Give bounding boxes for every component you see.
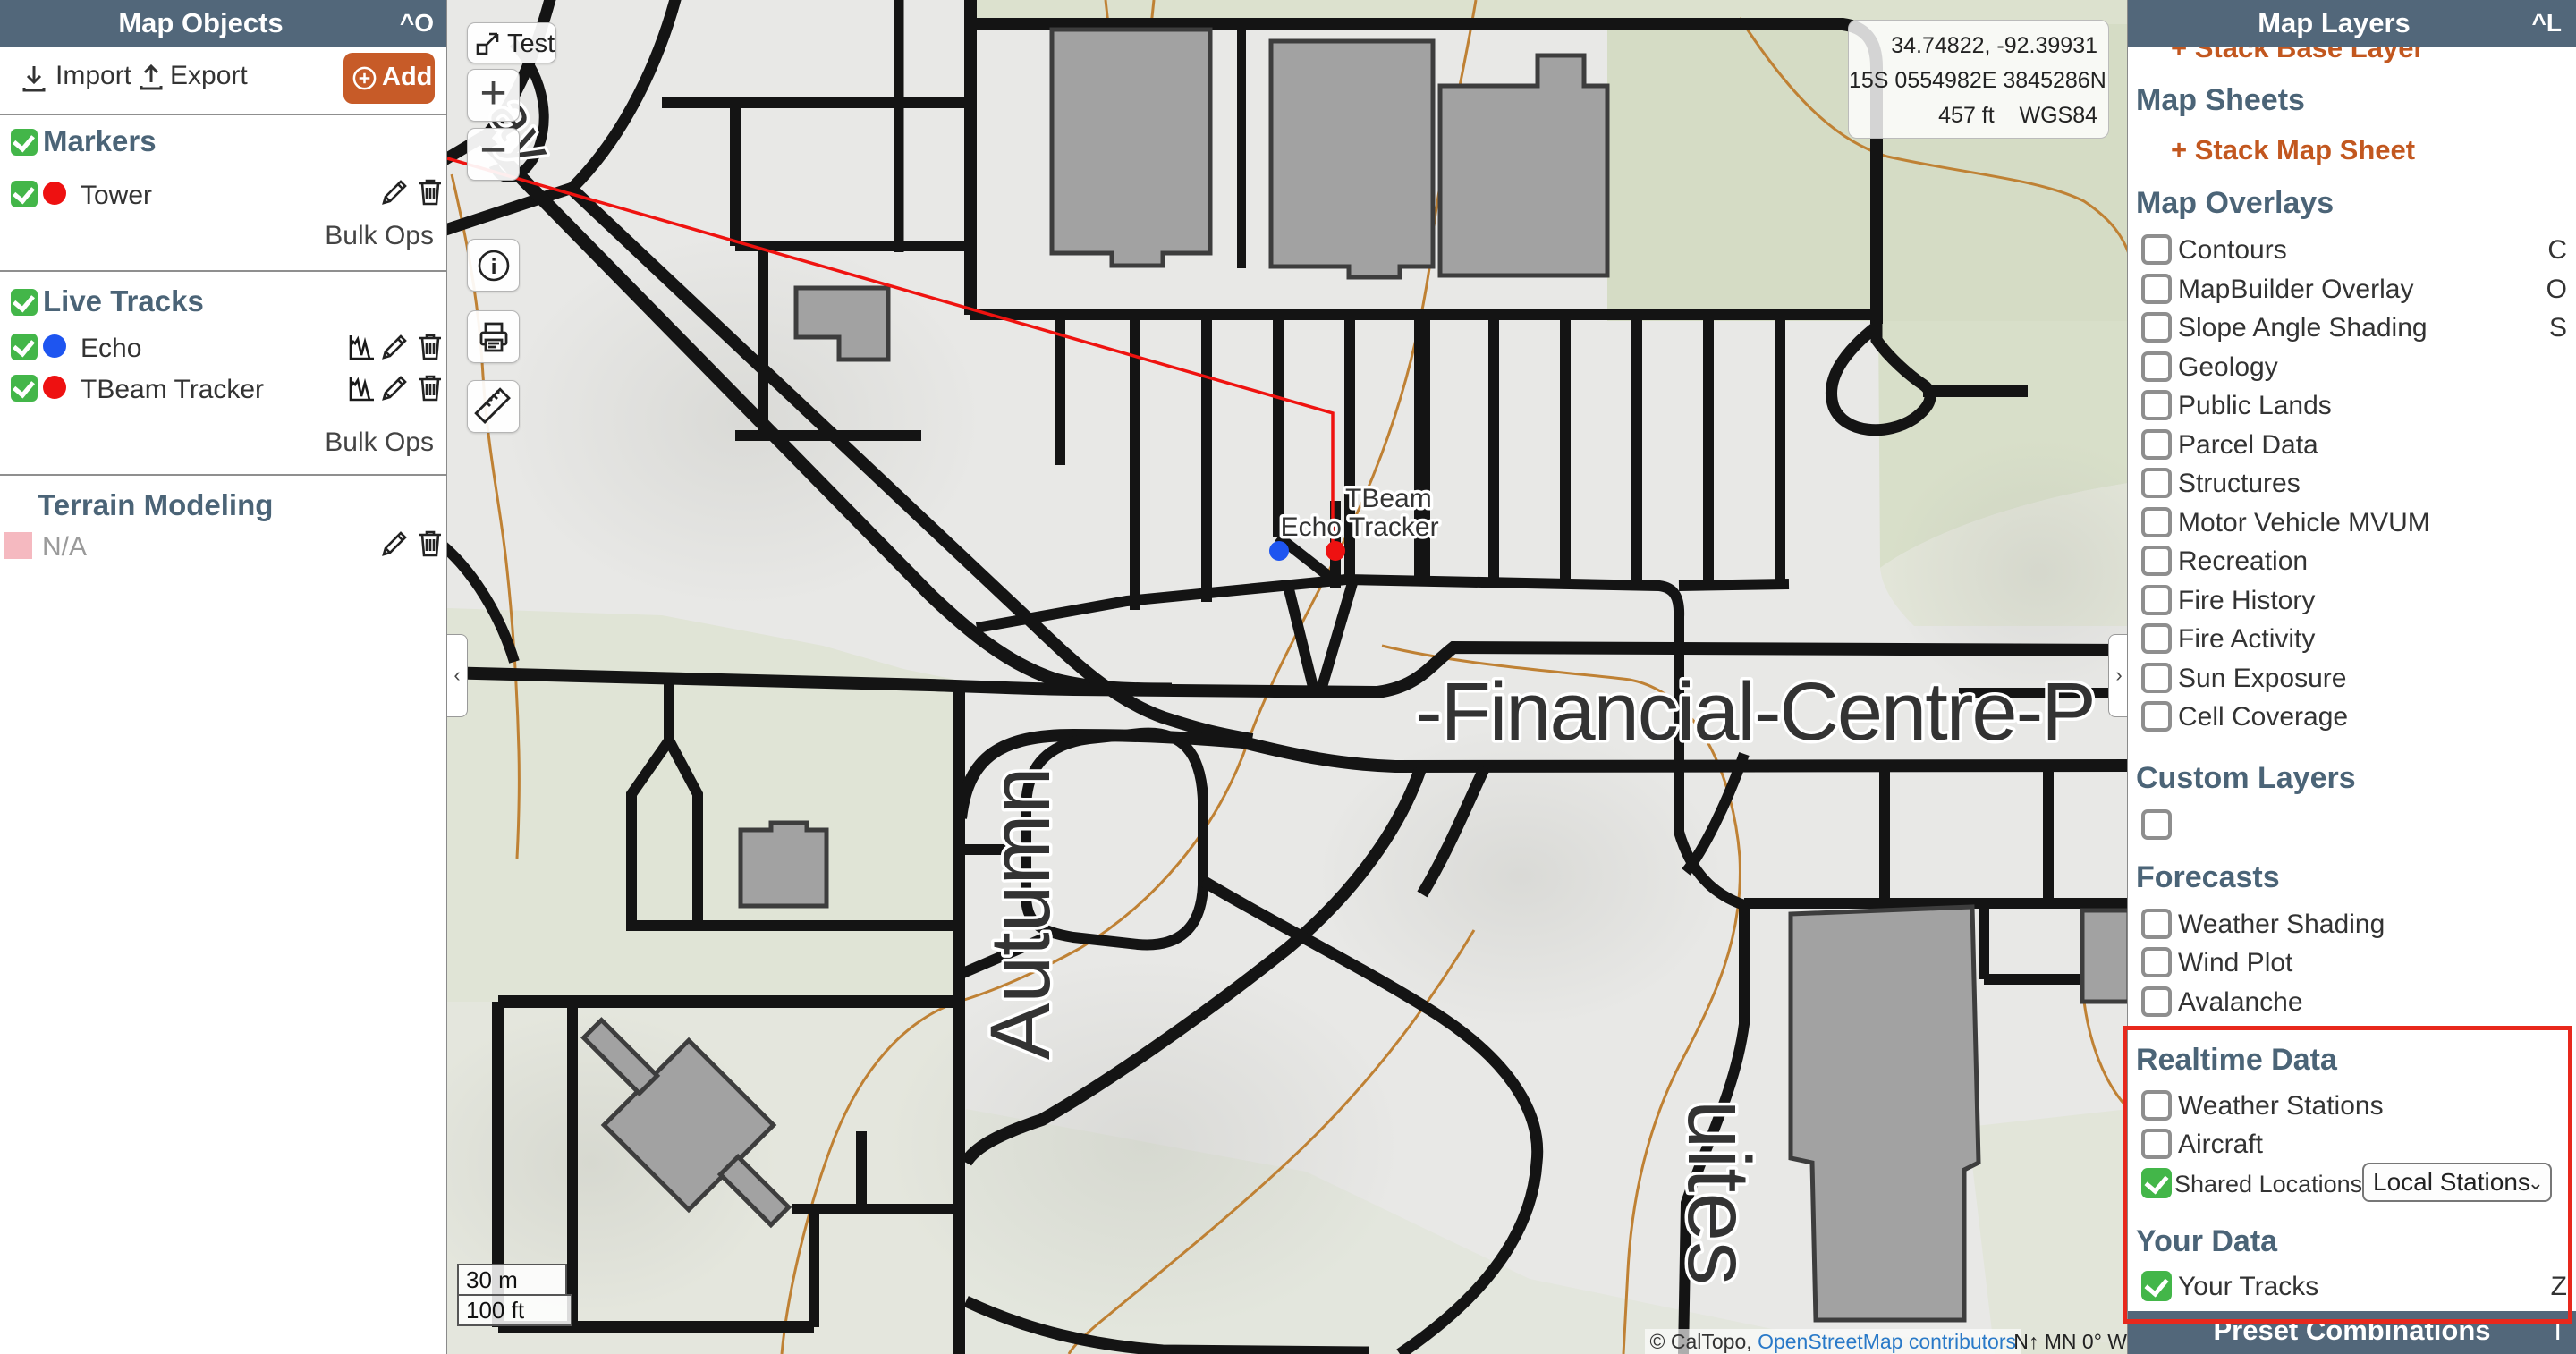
svg-text:Tracker: Tracker: [1349, 512, 1439, 542]
svg-text:Echo: Echo: [1281, 512, 1342, 542]
svg-text:uites: uites: [1670, 1100, 1768, 1285]
svg-text:TBeam: TBeam: [1345, 484, 1432, 513]
svg-text:Autumn: Autumn: [973, 767, 1068, 1060]
svg-text:-Financial-Centre-P: -Financial-Centre-P: [1415, 666, 2095, 757]
